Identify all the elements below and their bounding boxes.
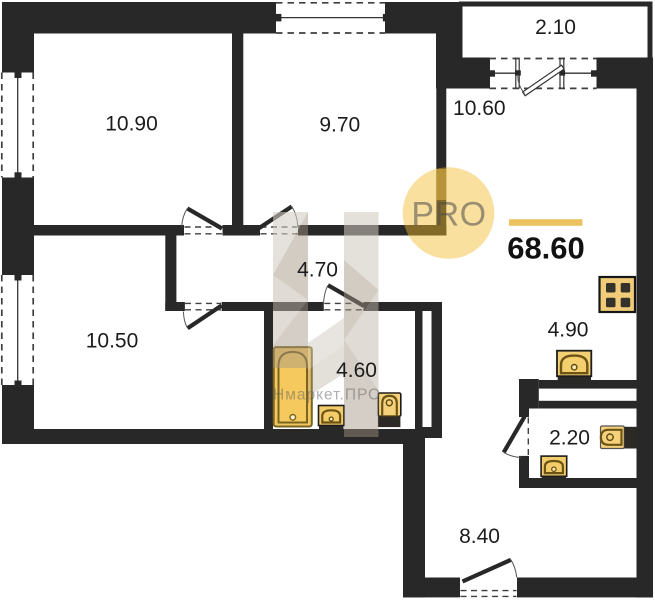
svg-text:4.60: 4.60 [336,359,377,382]
svg-text:10.50: 10.50 [86,330,139,353]
svg-text:8.40: 8.40 [459,525,500,548]
svg-text:2.10: 2.10 [535,16,576,39]
svg-text:4.70: 4.70 [297,259,338,282]
svg-text:Нмаркет.ПРО: Нмаркет.ПРО [273,387,381,404]
svg-text:PRO: PRO [411,196,486,234]
svg-text:10.60: 10.60 [453,97,506,120]
svg-text:2.20: 2.20 [549,427,590,450]
svg-text:9.70: 9.70 [319,113,360,136]
svg-text:10.90: 10.90 [105,112,158,135]
svg-text:68.60: 68.60 [507,230,585,265]
svg-text:4.90: 4.90 [548,318,589,341]
